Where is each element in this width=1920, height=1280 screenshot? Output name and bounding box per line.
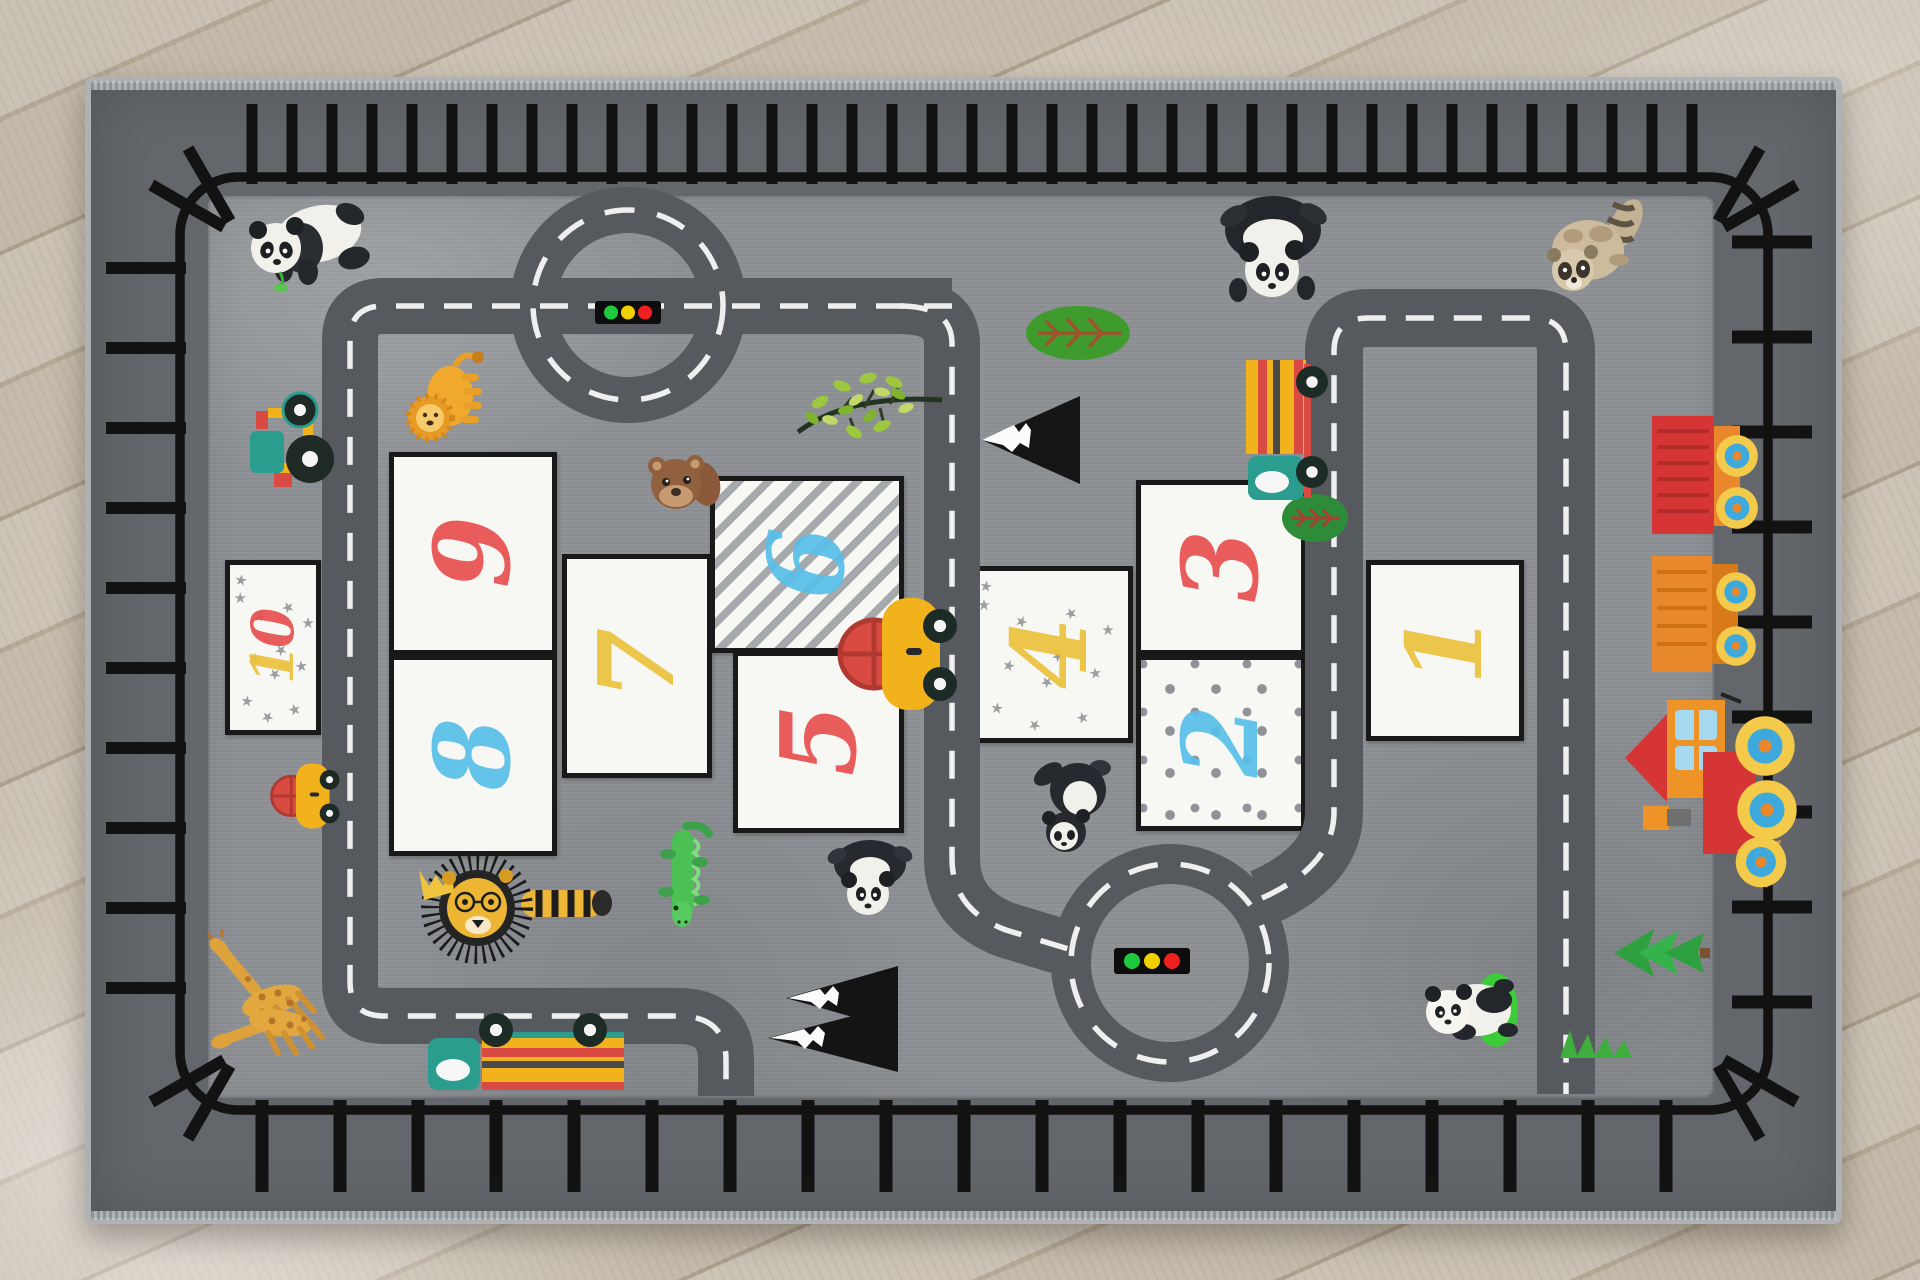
- rug-artwork-layer: [0, 0, 1920, 1280]
- leafy-tree-icon: [798, 371, 942, 441]
- traffic-light-icon: [1114, 948, 1190, 974]
- giraffe-icon: [206, 929, 322, 1053]
- mountain-icon: [982, 396, 1080, 484]
- grass-icon: [1560, 1030, 1632, 1058]
- panda-icon: [249, 196, 372, 292]
- yellow-car-icon: [840, 598, 957, 710]
- photo-of-play-rug: ★★★★★★★★★★★★1098765★★★★★★★★★★★★4321: [0, 0, 1920, 1280]
- bush-icon: [1282, 494, 1348, 542]
- panda-icon: [1217, 196, 1331, 302]
- panda-icon: [1030, 757, 1111, 852]
- tractor-icon: [250, 393, 334, 487]
- lion-icon: [408, 351, 484, 440]
- pine-tree-icon: [1614, 929, 1710, 977]
- raccoon-icon: [1547, 194, 1650, 291]
- yellow-car-icon: [272, 763, 340, 828]
- lion-icon: [419, 862, 612, 954]
- bear-icon: [648, 455, 724, 509]
- crocodile-icon: [658, 825, 710, 927]
- road-network: [350, 210, 1566, 1096]
- train-wagon-orange-icon: [1652, 556, 1756, 672]
- train-locomotive-icon: [1625, 694, 1797, 888]
- oval-tree-icon: [1026, 306, 1130, 360]
- panda-icon: [1425, 973, 1518, 1047]
- panda-icon: [825, 840, 915, 915]
- mountain-range-icon: [768, 966, 898, 1072]
- traffic-light-icon: [595, 301, 661, 324]
